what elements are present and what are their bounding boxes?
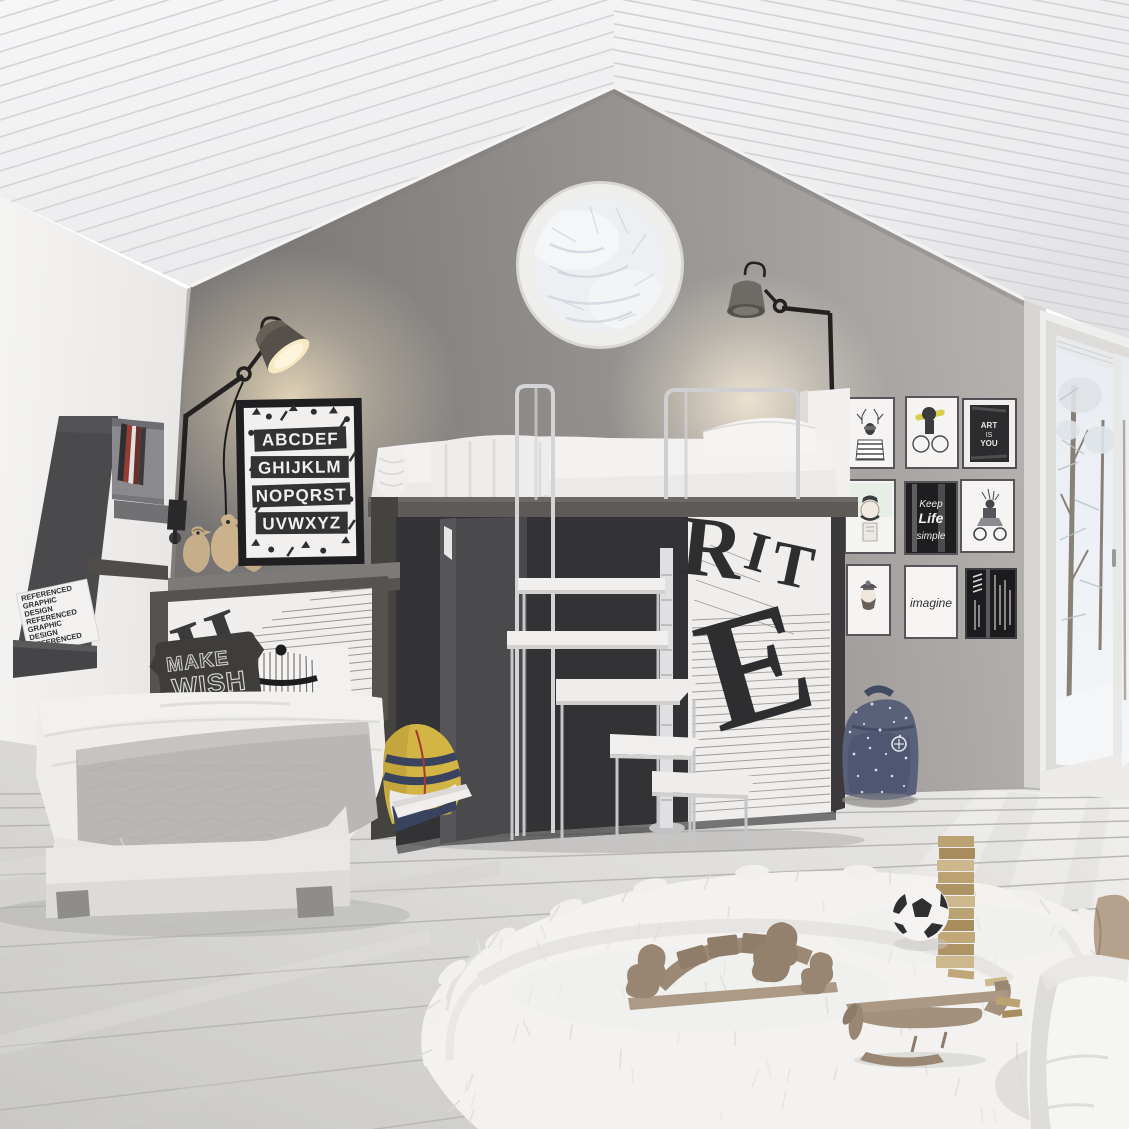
svg-text:UVWXYZ: UVWXYZ	[262, 513, 341, 533]
svg-text:Life: Life	[919, 510, 944, 526]
svg-text:Keep: Keep	[919, 499, 943, 510]
svg-text:imagine: imagine	[910, 596, 952, 610]
svg-text:simple: simple	[917, 531, 946, 542]
svg-text:GHIJKLM: GHIJKLM	[258, 457, 342, 477]
svg-text:YOU: YOU	[980, 439, 998, 448]
svg-text:ART: ART	[981, 421, 998, 430]
svg-text:NOPQRST: NOPQRST	[256, 485, 347, 506]
svg-text:ABCDEF: ABCDEF	[262, 429, 339, 449]
svg-text:IS: IS	[986, 432, 993, 439]
